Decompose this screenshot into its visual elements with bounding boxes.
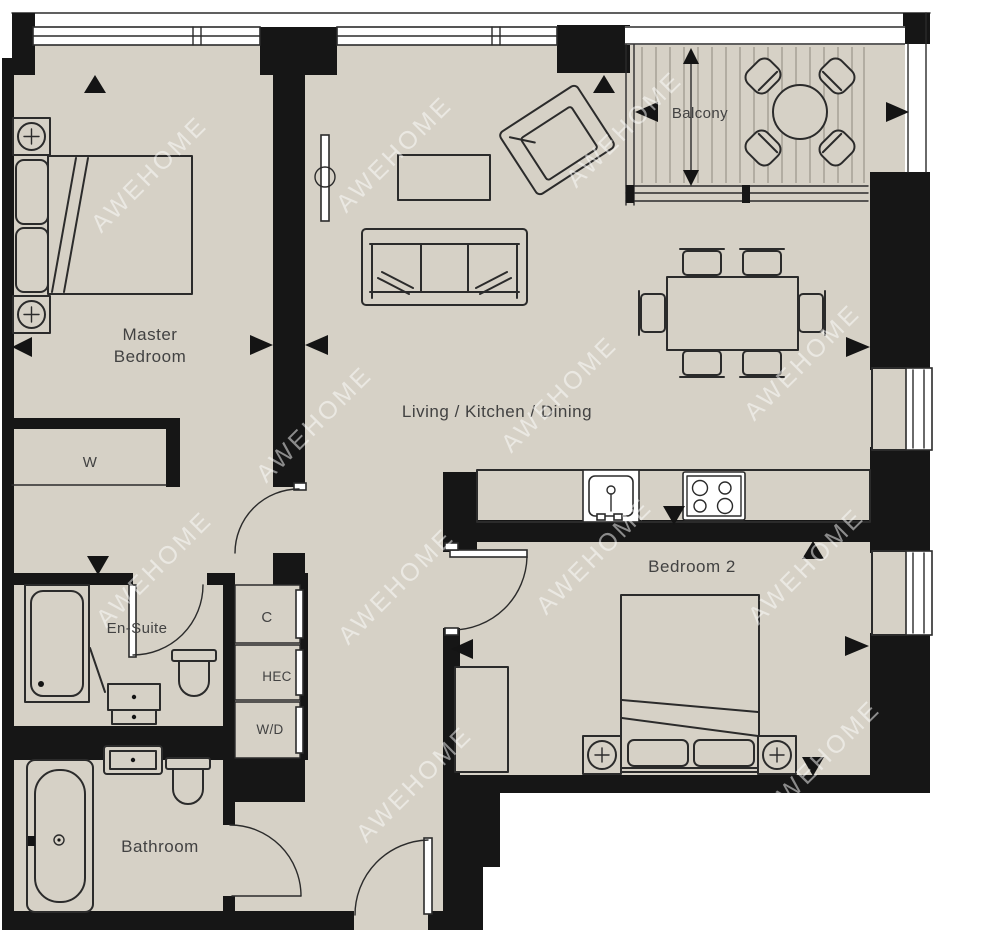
dining-chair-icon (740, 249, 784, 275)
nightstand-icon (758, 736, 796, 774)
window-dining-icon (872, 368, 932, 450)
hec-label: HEC (262, 669, 291, 684)
floor-plan-page: Master Bedroom Living / Kitchen / Dining… (0, 0, 990, 932)
wardrobe-icon (455, 667, 508, 772)
bathroom-label: Bathroom (121, 837, 199, 856)
wardrobe-label: W (83, 454, 98, 471)
sofa-icon (362, 229, 527, 305)
cupboard-label: C (261, 609, 272, 626)
nightstand-icon (583, 736, 621, 774)
window-living-icon (337, 27, 557, 45)
dining-chair-icon (680, 249, 724, 275)
dining-chair-icon (680, 351, 724, 377)
hob-icon (683, 472, 745, 520)
master-bedroom-label-line2: Bedroom (114, 347, 186, 366)
dining-table-icon (667, 277, 798, 350)
washer-dryer-label: W/D (256, 722, 283, 737)
vanity-icon (108, 684, 160, 724)
nightstand-icon (13, 118, 50, 155)
balcony-label: Balcony (672, 105, 728, 122)
dining-chair-icon (639, 291, 665, 335)
floor-plan: Master Bedroom Living / Kitchen / Dining… (0, 0, 990, 932)
nightstand-icon (13, 296, 50, 333)
balcony-table-icon (773, 85, 827, 139)
master-bedroom-label-line1: Master (123, 325, 178, 344)
coffee-table-icon (398, 155, 490, 200)
window-bedroom2-icon (872, 551, 932, 635)
bed2-icon (621, 595, 759, 772)
bedroom2-label: Bedroom 2 (648, 557, 736, 576)
bathtub-icon (27, 760, 93, 912)
window-master-icon (33, 27, 260, 45)
vanity-icon (104, 746, 162, 774)
